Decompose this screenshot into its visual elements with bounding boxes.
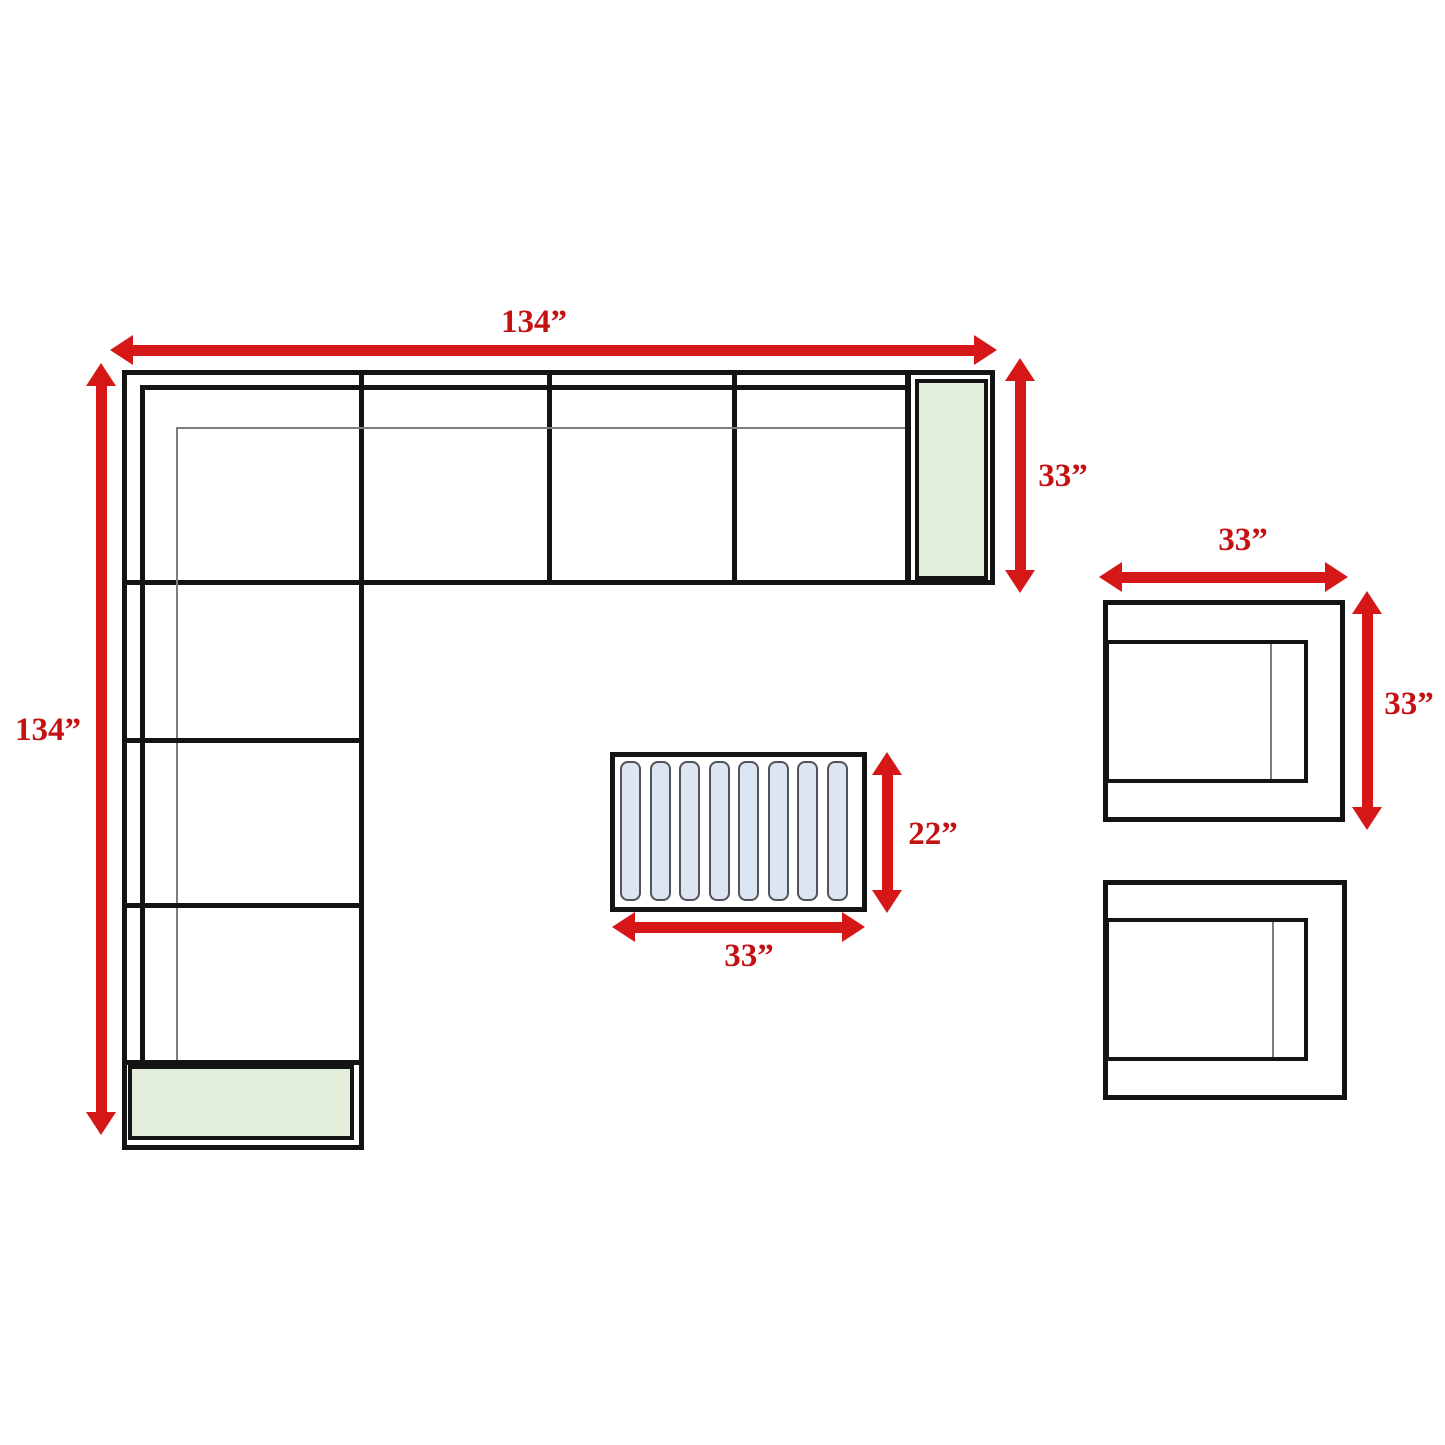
table-depth-label: 22” xyxy=(900,818,966,851)
sofa-width-label: 134” xyxy=(478,306,590,339)
table-slat xyxy=(709,761,730,901)
sectional-vertical-arm-outline xyxy=(122,370,364,1150)
table-slat xyxy=(620,761,641,901)
table-slat xyxy=(827,761,848,901)
sofa-depth-label: 134” xyxy=(10,714,86,747)
table-width-arrow xyxy=(612,913,865,941)
armchair-seat-outline xyxy=(1105,918,1308,1061)
armchair-back-cushion-line xyxy=(1272,922,1274,1057)
armrest-frame-line xyxy=(140,385,145,1062)
seat-divider xyxy=(732,370,737,585)
sofa-width-arrow xyxy=(110,336,997,364)
table-depth-arrow xyxy=(873,752,901,913)
end-section-divider xyxy=(905,370,911,585)
armrest-cushion-line xyxy=(176,427,178,1062)
seat-divider xyxy=(122,738,364,743)
bottom-end-cushion xyxy=(128,1065,354,1140)
chair-width-label: 33” xyxy=(1208,524,1278,557)
backrest-frame-line xyxy=(140,385,905,390)
table-width-label: 33” xyxy=(714,940,784,973)
seat-divider xyxy=(547,370,552,585)
table-slat xyxy=(738,761,759,901)
table-slat xyxy=(797,761,818,901)
furniture-dimension-diagram: 134” 134” 33” 33” 33” 22” 33” xyxy=(0,0,1445,1445)
table-slat xyxy=(679,761,700,901)
chair-width-arrow xyxy=(1099,563,1348,591)
sofa-end-depth-label: 33” xyxy=(1030,460,1096,493)
backrest-cushion-line xyxy=(176,427,905,429)
chair-depth-label: 33” xyxy=(1376,688,1442,721)
armchair-seat-outline xyxy=(1105,640,1308,783)
armchair-back-cushion-line xyxy=(1270,644,1272,779)
right-end-cushion xyxy=(915,379,988,580)
table-slat xyxy=(650,761,671,901)
table-slats xyxy=(620,761,848,901)
seat-divider xyxy=(122,903,364,908)
sofa-depth-arrow xyxy=(87,363,115,1135)
table-slat xyxy=(768,761,789,901)
